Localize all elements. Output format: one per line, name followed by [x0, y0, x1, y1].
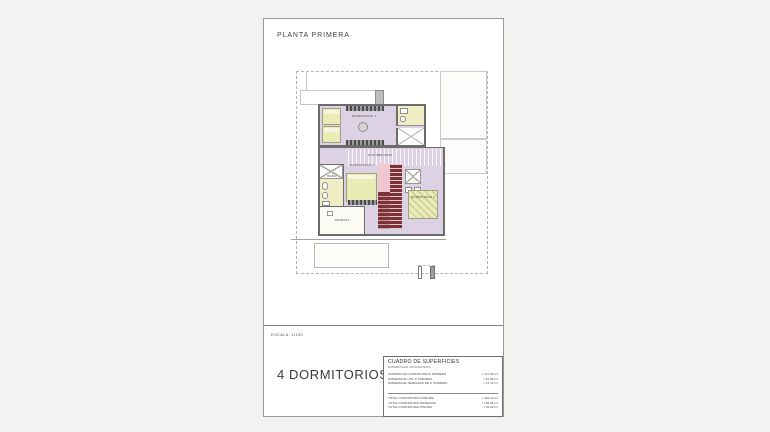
bed-symbol [346, 173, 377, 202]
entrance-wall [430, 266, 435, 279]
surfaces-totals: TOTAL CONSTRUIDA VIVIENDA = 246,10 m² TO… [388, 393, 498, 410]
plot-line [306, 71, 307, 91]
stair-steps [378, 195, 390, 229]
toilet-symbol [322, 182, 328, 190]
side-terrace-outline-lower [440, 139, 487, 174]
room-label-dormitorio-1: DORMITORIO 1 [344, 115, 384, 119]
surface-row-value: = 13,15 m² [483, 381, 498, 386]
room-label-dormitorio-2: DORMITORIO 2 [344, 164, 380, 168]
sheet-divider [264, 325, 503, 326]
bathroom-left: BAÑO [320, 164, 344, 206]
room-label-bano: BAÑO [321, 175, 343, 179]
surfaces-table-subtitle: SUPERFICIES CONSTRUIDAS [388, 366, 498, 370]
house-lower-block: DISTRIBUIDOR BAÑO DORMITORIO 2 DORMITORI… [318, 147, 445, 236]
drawing-sheet: PLANTA PRIMERA DORMITORIO 1 DISTRIBUIDOR… [263, 18, 504, 417]
toilet-symbol [400, 116, 406, 122]
surface-row-label: SUPERFICIE TERRAZAS DE P. PRIMERA [388, 381, 447, 386]
wardrobe-symbol [346, 106, 384, 111]
total-row-value: = 32,00 m² [483, 405, 498, 410]
porch-roof-outline [300, 90, 381, 105]
bathroom-upper [396, 106, 424, 126]
surfaces-table: CUADRO DE SUPERFICIES SUPERFICIES CONSTR… [383, 356, 503, 417]
entrance-steps [418, 265, 435, 278]
canvas: { "page": { "title": "PLANTA PRIMERA", "… [0, 0, 770, 432]
bed-symbol [322, 108, 341, 125]
wardrobe-symbol [346, 140, 384, 145]
staircase-symbol [378, 164, 402, 229]
room-dormitorio-1: DORMITORIO 1 [318, 104, 426, 147]
pool-outline [314, 243, 389, 268]
side-terrace-outline-upper [440, 71, 487, 139]
bed-symbol [322, 126, 341, 143]
stair-landing [378, 164, 390, 192]
scale-label: ESCALA: 1/150 [271, 332, 303, 337]
page-title: PLANTA PRIMERA [277, 32, 350, 39]
terrace-area: TERRAZA [320, 206, 365, 234]
total-row: TOTAL CONSTRUIDA PISCINA = 32,00 m² [388, 405, 498, 410]
total-row-label: TOTAL CONSTRUIDA PISCINA [388, 405, 432, 410]
wardrobe-symbol [348, 200, 377, 205]
stair-steps [390, 164, 402, 229]
room-label-dormitorio-3: DORMITORIO 3 [406, 196, 440, 200]
site-line [291, 239, 446, 240]
entrance-wall [418, 266, 422, 279]
bidet-symbol [322, 192, 328, 199]
table-symbol [327, 211, 333, 216]
shower-symbol [405, 169, 421, 184]
room-label-terraza: TERRAZA [322, 219, 362, 223]
stair-void-hatch [396, 128, 424, 145]
bedrooms-caption: 4 DORMITORIOS [277, 367, 389, 382]
table-symbol [358, 122, 368, 132]
sink-symbol [400, 108, 408, 114]
surface-row: SUPERFICIE TERRAZAS DE P. PRIMERA = 13,1… [388, 381, 498, 386]
room-label-distribuidor: DISTRIBUIDOR [355, 154, 405, 158]
